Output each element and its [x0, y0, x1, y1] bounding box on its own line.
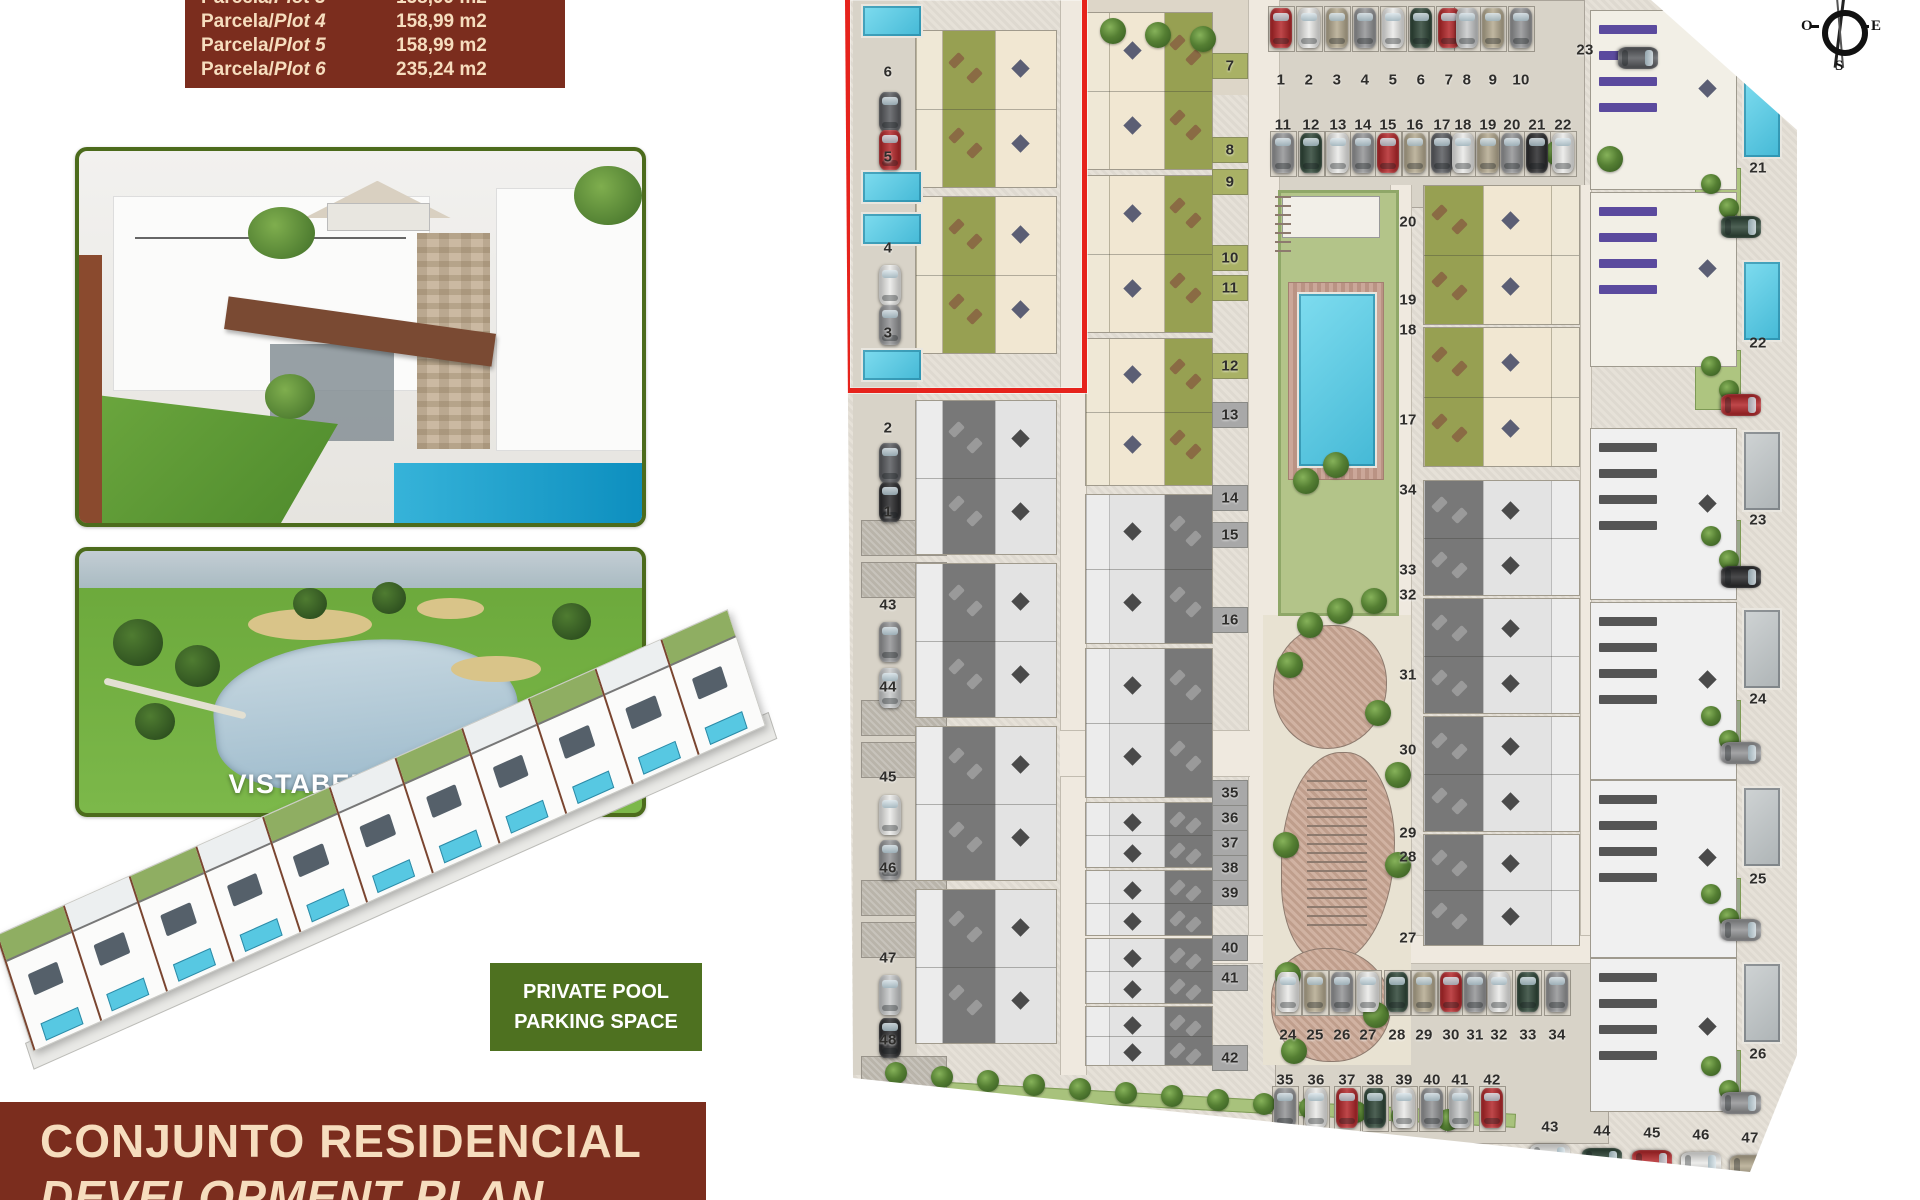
patio-table-icon	[1011, 429, 1029, 447]
development-banner: CONJUNTO RESIDENCIAL DEVELOPMENT PLAN	[0, 1102, 706, 1200]
plot-area: 158,99 m2	[396, 11, 549, 33]
window	[359, 813, 395, 847]
plot-number: 38	[1221, 860, 1238, 877]
access-ramp	[1275, 196, 1291, 252]
tree-icon	[1297, 612, 1323, 638]
villa-pool	[1742, 430, 1782, 512]
patio-table-icon	[1124, 204, 1142, 222]
window	[625, 695, 661, 729]
car-rear-window	[1360, 1002, 1376, 1008]
car	[1501, 133, 1523, 173]
sun-lounger-icon	[1451, 426, 1468, 443]
car-rear-window	[1586, 1151, 1592, 1167]
car-rear-window	[1725, 1095, 1731, 1111]
plot-area: 235,24 m2	[396, 59, 549, 81]
tree-icon	[1361, 588, 1387, 614]
roof-garden	[0, 906, 71, 962]
car-windshield	[1748, 397, 1756, 413]
solar-panel-icon	[1599, 77, 1657, 86]
car	[1300, 133, 1322, 173]
compass-tick	[1861, 25, 1869, 28]
banner-title-en: DEVELOPMENT PLAN	[40, 1170, 706, 1200]
car-rear-window	[882, 825, 898, 831]
car-windshield	[1339, 1093, 1355, 1101]
car-rear-window	[1725, 397, 1731, 413]
patio-table-icon	[1011, 502, 1029, 520]
car-rear-window	[1443, 1002, 1459, 1008]
villa-fence	[79, 255, 102, 523]
duplex-divider	[916, 641, 1056, 642]
compass: O E S	[1795, 0, 1905, 90]
car-rear-window	[1275, 163, 1291, 169]
patio-table-icon	[1501, 792, 1519, 810]
badge-line2: PARKING SPACE	[514, 1007, 678, 1037]
tree-icon	[1701, 1056, 1721, 1076]
car-windshield	[1443, 977, 1459, 985]
car	[1488, 972, 1510, 1012]
parking-number: 19	[1479, 117, 1496, 134]
duplex-divider	[1424, 397, 1579, 398]
parking-number: 27	[1359, 1027, 1376, 1044]
sun-lounger-icon	[948, 421, 965, 438]
car-windshield	[1441, 13, 1457, 21]
sun-lounger-icon	[1185, 287, 1202, 304]
car-windshield	[1659, 1153, 1667, 1169]
car-rear-window	[1441, 38, 1457, 44]
car-rear-window	[1396, 1118, 1412, 1124]
car-windshield	[1549, 977, 1565, 985]
house-block	[915, 889, 1057, 1044]
plot-label: Parcela/Plot 6	[201, 59, 396, 81]
plot-number: 21	[1749, 160, 1766, 177]
sun-lounger-icon	[1169, 811, 1186, 828]
solar-panel-icon	[1599, 285, 1657, 294]
tree-icon	[1277, 652, 1303, 678]
parking-number: 20	[1503, 117, 1520, 134]
house-block	[1423, 480, 1580, 596]
car	[1386, 972, 1408, 1012]
car-windshield	[1520, 977, 1536, 985]
golf-sky	[79, 551, 642, 588]
parking-number: 45	[1643, 1125, 1660, 1142]
parking-number: 7	[1445, 72, 1454, 89]
tree-icon	[1161, 1085, 1183, 1107]
car	[1331, 972, 1353, 1012]
car-windshield	[1609, 1151, 1617, 1167]
car	[1305, 1088, 1327, 1128]
sun-lounger-icon	[1431, 496, 1448, 513]
plot-number: 12	[1221, 358, 1238, 375]
patio-table-icon	[1124, 747, 1142, 765]
tree-icon	[1207, 1089, 1229, 1111]
sun-lounger-icon	[1185, 984, 1202, 1001]
sun-lounger-icon	[1431, 271, 1448, 288]
car	[1364, 1088, 1386, 1128]
solar-panel-icon	[1599, 25, 1657, 34]
sun-lounger-icon	[1431, 614, 1448, 631]
car	[1730, 1155, 1770, 1177]
car-rear-window	[1734, 1158, 1740, 1174]
tree-icon	[1719, 198, 1739, 218]
villa-block	[1590, 780, 1737, 958]
parking-number: 3	[1333, 72, 1342, 89]
car-rear-window	[1520, 1002, 1536, 1008]
parking-number: 13	[1329, 117, 1346, 134]
sun-lounger-icon	[1185, 817, 1202, 834]
car	[1721, 742, 1761, 764]
patio-table-icon	[1124, 593, 1142, 611]
car	[1404, 133, 1426, 173]
car-rear-window	[1303, 163, 1319, 169]
patio-table-icon	[1501, 854, 1519, 872]
car-rear-window	[1485, 38, 1501, 44]
tree-icon	[1293, 468, 1319, 494]
car-windshield	[1385, 13, 1401, 21]
villa-pool	[1742, 260, 1782, 342]
page: Parcela/Plot 3158,99 m2Parcela/Plot 4158…	[0, 0, 1920, 1200]
solar-panel-icon	[1599, 617, 1657, 626]
car-rear-window	[1549, 1002, 1565, 1008]
house-block	[1085, 1006, 1213, 1066]
sun-lounger-icon	[1451, 218, 1468, 235]
plot-table-row: Parcela/Plot 4158,99 m2	[185, 10, 565, 34]
plot-table: Parcela/Plot 3158,99 m2Parcela/Plot 4158…	[185, 0, 565, 88]
sun-lounger-icon	[1431, 902, 1448, 919]
house-block	[1423, 834, 1580, 946]
parking-number: 2	[1305, 72, 1314, 89]
villa-block	[1590, 192, 1737, 367]
car-windshield	[1277, 1093, 1293, 1101]
parking-number: 5	[1389, 72, 1398, 89]
sun-lounger-icon	[1431, 346, 1448, 363]
car	[1336, 1088, 1358, 1128]
parking-number: 14	[1354, 117, 1371, 134]
townhouses-render	[15, 685, 835, 1105]
car	[1721, 1092, 1761, 1114]
tree-icon	[1253, 1093, 1275, 1115]
sun-lounger-icon	[1185, 953, 1202, 970]
car	[1326, 8, 1348, 48]
car	[879, 443, 901, 483]
sun-lounger-icon	[948, 495, 965, 512]
plot-number: 20	[1399, 214, 1416, 231]
plot-number: 43	[879, 597, 896, 614]
duplex-divider	[1086, 903, 1212, 904]
house-block	[1085, 938, 1213, 1004]
parking-number: 23	[1576, 42, 1593, 59]
window	[559, 725, 595, 759]
car-windshield	[882, 845, 898, 853]
plot-number: 19	[1399, 292, 1416, 309]
sun-lounger-icon	[1169, 358, 1186, 375]
parking-number: 17	[1433, 117, 1450, 134]
patio-table-icon	[1124, 365, 1142, 383]
plot-number: 9	[1226, 174, 1235, 191]
plot-label: Parcela/Plot 5	[201, 35, 396, 57]
car	[1582, 1148, 1622, 1170]
sun-lounger-icon	[1451, 507, 1468, 524]
tree-icon	[1069, 1078, 1091, 1100]
plot-number: 40	[1221, 940, 1238, 957]
car-windshield	[1355, 138, 1371, 146]
plot-number: 25	[1749, 871, 1766, 888]
sun-lounger-icon	[1431, 732, 1448, 749]
car-windshield	[1424, 1093, 1440, 1101]
patio-table-icon	[1698, 494, 1716, 512]
car	[1357, 972, 1379, 1012]
patio-table-icon	[1501, 737, 1519, 755]
sun-lounger-icon	[1451, 680, 1468, 697]
plot-number: 24	[1749, 691, 1766, 708]
car	[1481, 1088, 1503, 1128]
parking-number: 18	[1454, 117, 1471, 134]
plot-number: 41	[1221, 970, 1238, 987]
plot-number: 28	[1399, 849, 1416, 866]
parking-number: 10	[1512, 72, 1529, 89]
car	[1618, 47, 1658, 69]
parking-number: 16	[1406, 117, 1423, 134]
house-block	[1423, 716, 1580, 832]
plot-number: 13	[1221, 407, 1238, 424]
plot-number: 22	[1749, 335, 1766, 352]
car	[1274, 1088, 1296, 1128]
golf-tree	[113, 619, 164, 666]
car-windshield	[1555, 138, 1571, 146]
plot-number: 29	[1399, 825, 1416, 842]
private-pool-badge: PRIVATE POOL PARKING SPACE	[490, 963, 702, 1051]
villa-pool	[1742, 962, 1782, 1044]
plot-table-row: Parcela/Plot 5158,99 m2	[185, 34, 565, 58]
car	[1721, 394, 1761, 416]
parking-number: 15	[1379, 117, 1396, 134]
patio-table-icon	[1124, 844, 1142, 862]
sun-lounger-icon	[966, 673, 983, 690]
tree-icon	[977, 1070, 999, 1092]
car	[1270, 8, 1292, 48]
solar-panel-icon	[1599, 695, 1657, 704]
duplex-divider	[916, 967, 1056, 968]
car	[1464, 972, 1486, 1012]
car-windshield	[1273, 13, 1289, 21]
car-windshield	[1513, 13, 1529, 21]
car-windshield	[1407, 138, 1423, 146]
sun-lounger-icon	[966, 437, 983, 454]
sun-lounger-icon	[1451, 284, 1468, 301]
compass-south-label: S	[1835, 58, 1843, 75]
sun-lounger-icon	[1185, 212, 1202, 229]
sun-lounger-icon	[1169, 272, 1186, 289]
car-rear-window	[1622, 50, 1628, 66]
window	[293, 843, 329, 877]
car	[1377, 133, 1399, 173]
patio-table-icon	[1124, 881, 1142, 899]
plot-number: 16	[1221, 612, 1238, 629]
car	[1421, 1088, 1443, 1128]
car	[1382, 8, 1404, 48]
patio-table-icon	[1124, 1044, 1142, 1062]
house-block	[1085, 175, 1213, 333]
parking-number: 32	[1490, 1027, 1507, 1044]
solar-panel-icon	[1599, 847, 1657, 856]
car-rear-window	[1725, 922, 1731, 938]
car-windshield	[1467, 977, 1483, 985]
solar-panel-icon	[1599, 1051, 1657, 1060]
house-block	[1423, 598, 1580, 714]
window	[94, 932, 130, 966]
parking-number: 47	[1741, 1130, 1758, 1147]
parking-number: 41	[1451, 1072, 1468, 1089]
car-windshield	[1334, 977, 1350, 985]
car-rear-window	[882, 698, 898, 704]
roof-garden	[65, 877, 138, 933]
patio-table-icon	[1124, 436, 1142, 454]
sun-lounger-icon	[1431, 669, 1448, 686]
car	[1440, 972, 1462, 1012]
sun-lounger-icon	[1185, 885, 1202, 902]
garden-stairs	[1307, 780, 1367, 930]
car-rear-window	[882, 1005, 898, 1011]
car-rear-window	[1280, 1002, 1296, 1008]
parking-number: 11	[1275, 117, 1291, 134]
parking-number: 12	[1302, 117, 1319, 134]
plot-number: 32	[1399, 587, 1416, 604]
plot-number: 7	[1226, 58, 1235, 75]
golf-tree	[372, 582, 406, 613]
parking-number: 6	[1417, 72, 1426, 89]
house-block	[1085, 338, 1213, 486]
tree-icon	[1323, 452, 1349, 478]
plot-number: 8	[1226, 142, 1235, 159]
sun-lounger-icon	[1431, 413, 1448, 430]
car-windshield	[1380, 138, 1396, 146]
parking-number: 1	[1277, 72, 1286, 89]
patio-table-icon	[1124, 813, 1142, 831]
car-rear-window	[1416, 1002, 1432, 1008]
car-rear-window	[1277, 1118, 1293, 1124]
plot-label: Parcela/Plot 3	[201, 0, 396, 9]
car-rear-window	[1339, 1118, 1355, 1124]
car-rear-window	[1413, 38, 1429, 44]
tree-icon	[1365, 700, 1391, 726]
car-rear-window	[1273, 38, 1289, 44]
house-block	[915, 400, 1057, 555]
car-rear-window	[882, 1048, 898, 1054]
tree-icon	[1273, 832, 1299, 858]
tree-icon	[1100, 18, 1126, 44]
car-rear-window	[1380, 163, 1396, 169]
car-windshield	[1396, 1093, 1412, 1101]
sun-lounger-icon	[948, 821, 965, 838]
car-windshield	[882, 487, 898, 495]
sun-lounger-icon	[1185, 848, 1202, 865]
villa-pool	[1742, 786, 1782, 868]
plot-number: 17	[1399, 412, 1416, 429]
car-rear-window	[1455, 163, 1471, 169]
solar-panel-icon	[1599, 443, 1657, 452]
villa-pool	[394, 463, 642, 523]
tree-icon	[1701, 356, 1721, 376]
car-rear-window	[1467, 1002, 1483, 1008]
sun-lounger-icon	[1169, 669, 1186, 686]
parking-number: 29	[1415, 1027, 1432, 1044]
car-windshield	[1280, 977, 1296, 985]
parking-number: 43	[1541, 1119, 1558, 1136]
sun-lounger-icon	[1169, 1014, 1186, 1031]
villa-palm	[574, 166, 642, 226]
patio-table-icon	[1501, 674, 1519, 692]
solar-panel-icon	[1599, 495, 1657, 504]
sun-lounger-icon	[1451, 743, 1468, 760]
sun-lounger-icon	[966, 836, 983, 853]
duplex-divider	[1086, 91, 1212, 92]
patio-table-icon	[1124, 41, 1142, 59]
duplex-divider	[1086, 971, 1212, 972]
roof-garden	[131, 847, 204, 903]
car	[1413, 972, 1435, 1012]
patio-table-icon	[1011, 592, 1029, 610]
car-windshield	[1307, 977, 1323, 985]
plot-label: Parcela/Plot 4	[201, 11, 396, 33]
solar-panel-icon	[1599, 103, 1657, 112]
duplex-divider	[1424, 890, 1579, 891]
tree-icon	[1701, 706, 1721, 726]
car-rear-window	[1424, 1118, 1440, 1124]
car-windshield	[882, 448, 898, 456]
car-windshield	[1452, 1093, 1468, 1101]
site-plan: 6543214344454647487891011121314151635363…	[845, 0, 1813, 1175]
car-windshield	[882, 800, 898, 808]
solar-panel-icon	[1599, 821, 1657, 830]
plot-number: 36	[1221, 810, 1238, 827]
patio-table-icon	[1698, 259, 1716, 277]
window	[27, 961, 63, 995]
house-block	[1085, 870, 1213, 936]
car-windshield	[1416, 977, 1432, 985]
roof-garden	[463, 699, 536, 755]
patio-table-icon	[1124, 676, 1142, 694]
parking-number: 31	[1466, 1027, 1483, 1044]
car	[1449, 1088, 1471, 1128]
car-windshield	[1367, 1093, 1383, 1101]
car	[1482, 8, 1504, 48]
sun-lounger-icon	[1185, 1048, 1202, 1065]
car	[1517, 972, 1539, 1012]
patio-table-icon	[1698, 1017, 1716, 1035]
sun-lounger-icon	[1169, 910, 1186, 927]
car	[1298, 8, 1320, 48]
duplex-divider	[1086, 723, 1212, 724]
parking-number: 44	[1593, 1123, 1610, 1140]
car-windshield	[882, 1023, 898, 1031]
duplex-divider	[1086, 412, 1212, 413]
car-windshield	[1357, 13, 1373, 21]
plot-number: 48	[879, 1032, 896, 1049]
plot-number: 35	[1221, 785, 1238, 802]
sun-lounger-icon	[1169, 515, 1186, 532]
patio-table-icon	[1698, 79, 1716, 97]
plot-number: 23	[1749, 512, 1766, 529]
golf-tree	[175, 645, 220, 687]
solar-panel-icon	[1599, 207, 1657, 216]
sun-lounger-icon	[1185, 49, 1202, 66]
car-rear-window	[1357, 38, 1373, 44]
car-rear-window	[1555, 163, 1571, 169]
car-windshield	[1491, 977, 1507, 985]
sun-lounger-icon	[948, 984, 965, 1001]
car	[1354, 8, 1376, 48]
car-rear-window	[1484, 1118, 1500, 1124]
parking-number: 26	[1333, 1027, 1350, 1044]
